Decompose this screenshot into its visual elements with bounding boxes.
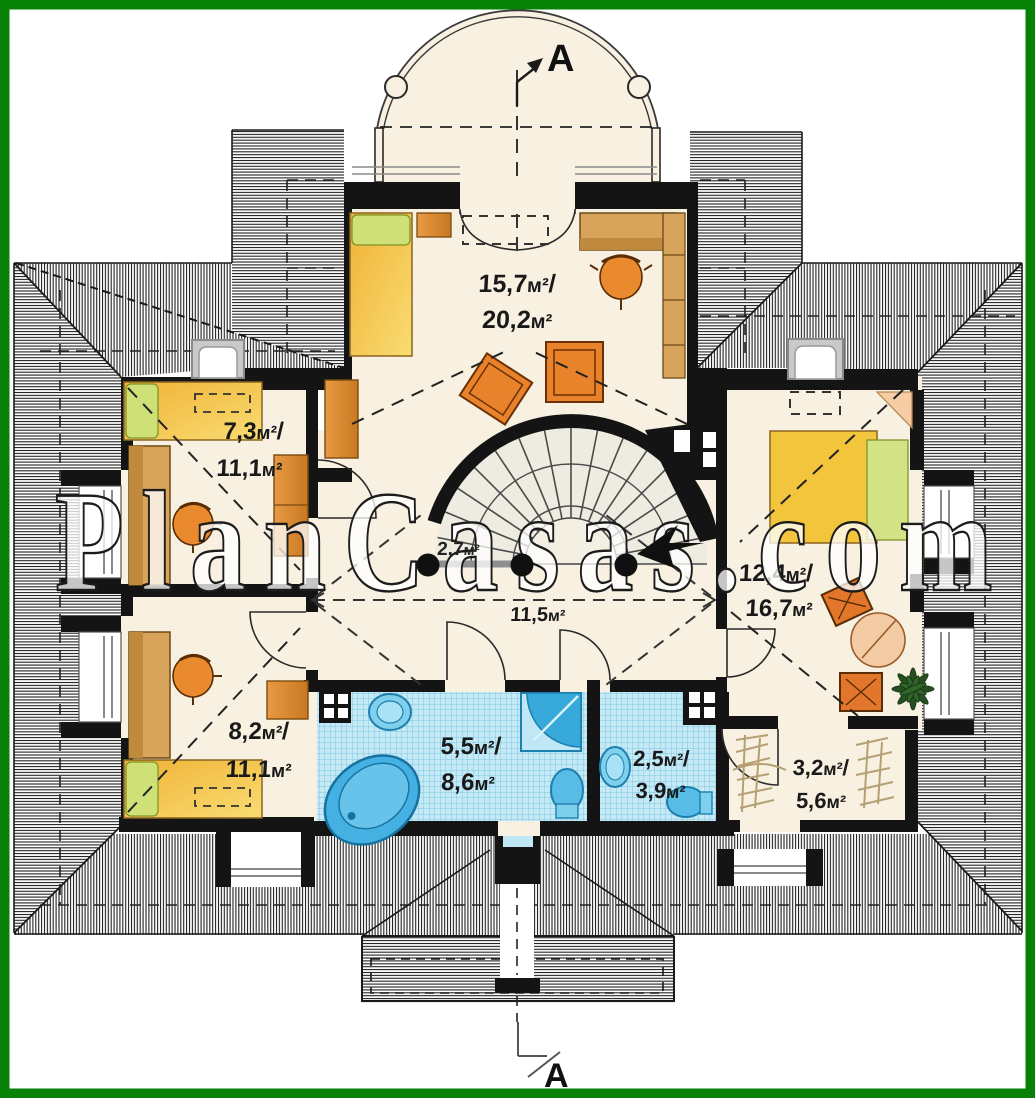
svg-text:11,1м²: 11,1м² — [225, 756, 292, 783]
svg-text:A: A — [544, 1057, 569, 1095]
svg-text:8,2м²/: 8,2м²/ — [228, 718, 290, 745]
svg-text:3,2м²/: 3,2м²/ — [792, 755, 849, 780]
svg-text:A: A — [547, 38, 574, 80]
svg-text:2,5м²/: 2,5м²/ — [633, 746, 690, 771]
svg-text:2,7м²: 2,7м² — [437, 539, 481, 560]
svg-text:20,2м²: 20,2м² — [481, 306, 553, 334]
svg-text:15,7м²/: 15,7м²/ — [478, 270, 557, 298]
svg-text:8,6м²: 8,6м² — [440, 769, 495, 796]
svg-text:5,6м²: 5,6м² — [795, 788, 846, 813]
svg-text:5,5м²/: 5,5м²/ — [440, 733, 502, 760]
svg-text:7,3м²/: 7,3м²/ — [222, 418, 284, 445]
svg-text:3,9м²: 3,9м² — [635, 778, 686, 803]
svg-text:PlanCasas.com: PlanCasas.com — [55, 462, 1010, 621]
